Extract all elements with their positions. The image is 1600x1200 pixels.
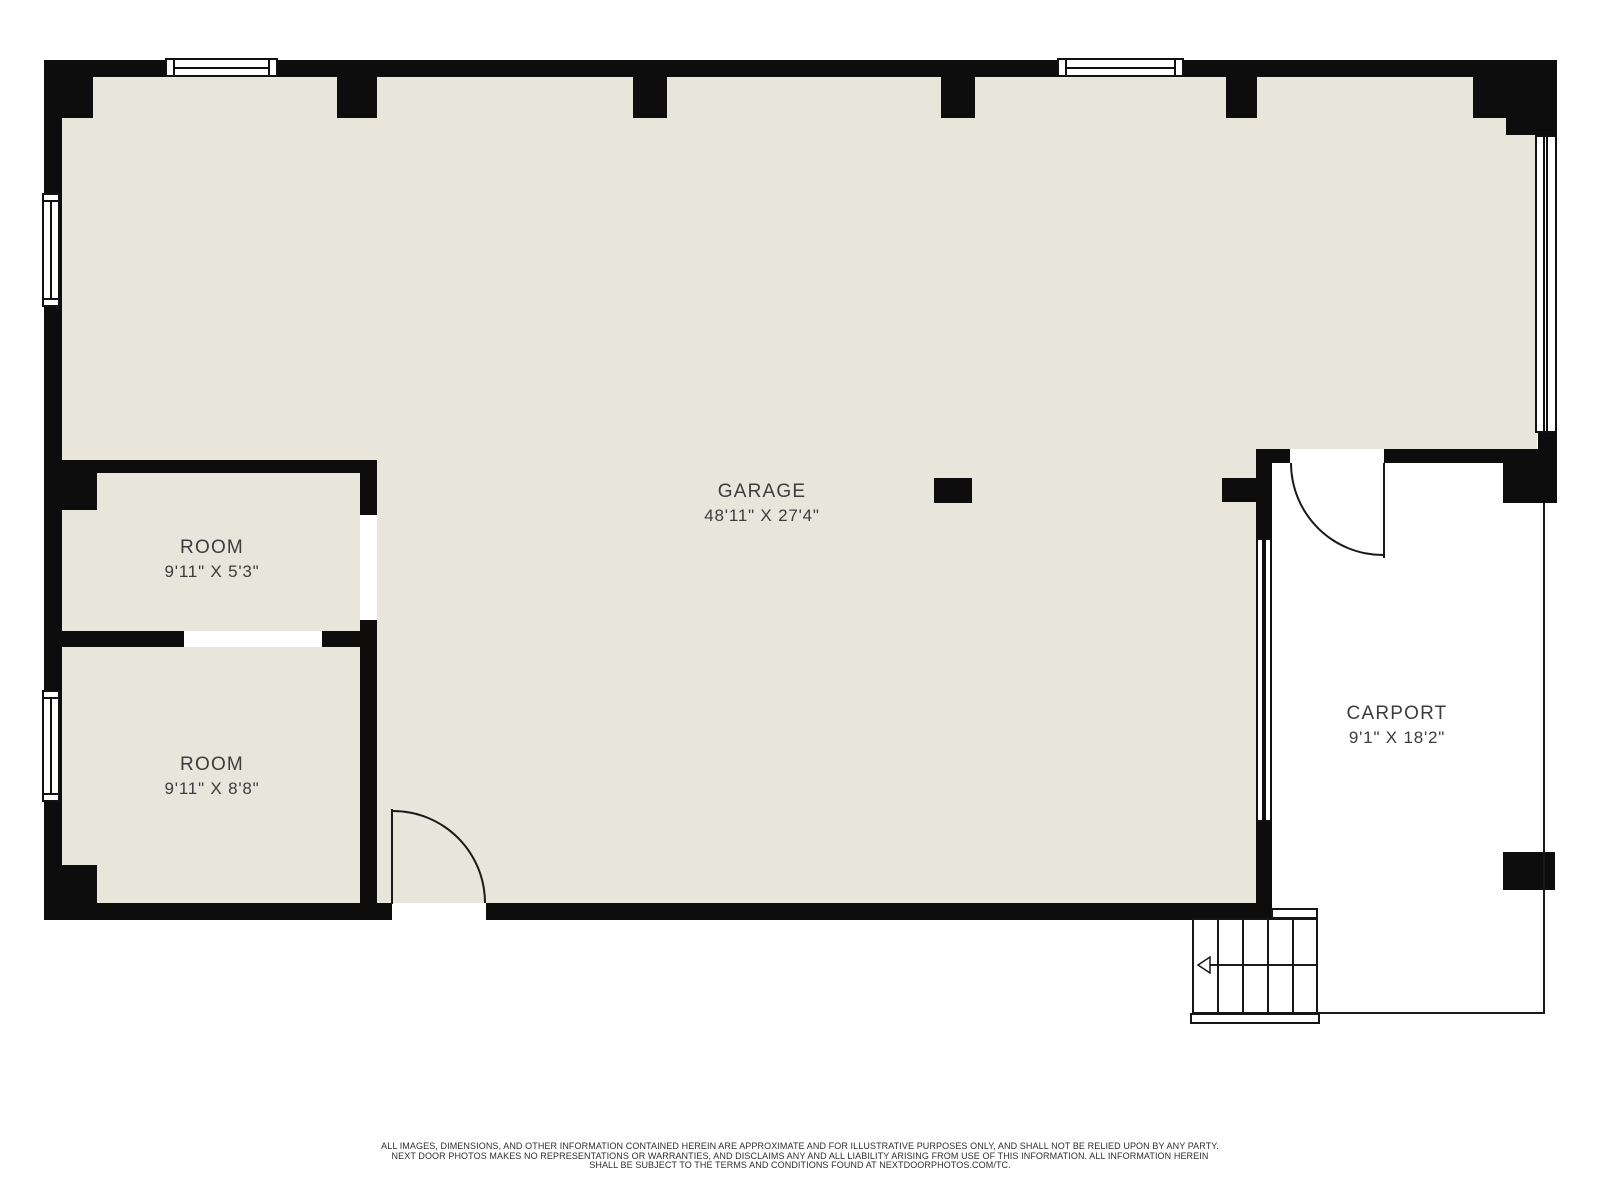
room-dimensions: 9'1" X 18'2" <box>1347 725 1448 751</box>
room-name: ROOM <box>165 536 260 559</box>
window-left-2 <box>42 690 60 802</box>
disclaimer-footer: ALL IMAGES, DIMENSIONS, AND OTHER INFORM… <box>0 1142 1600 1171</box>
garage-label: GARAGE 48'11" X 27'4" <box>704 480 819 529</box>
stair-tread-line <box>1267 920 1269 1012</box>
wall-right-below-window <box>1538 433 1557 463</box>
window-glass-line <box>50 698 52 794</box>
window-glass-line <box>50 201 52 299</box>
pillar-top-right-corner <box>1473 60 1557 118</box>
window-glass-line <box>1543 137 1545 431</box>
disclaimer-line: SHALL BE SUBJECT TO THE TERMS AND CONDIT… <box>0 1161 1600 1171</box>
garage-column <box>934 478 972 503</box>
carport-right-boundary-line <box>1543 503 1545 1014</box>
pillar-top-4 <box>1226 60 1257 118</box>
carport-door-opening <box>1290 449 1384 463</box>
window-glass-line <box>173 67 270 69</box>
window-left-1 <box>42 193 60 307</box>
carport-label: CARPORT 9'1" X 18'2" <box>1347 702 1448 751</box>
garage-entry-door-opening <box>392 903 486 920</box>
pillar-top-1 <box>337 60 377 118</box>
window-glass-line <box>1065 67 1176 69</box>
stairs-direction-arrow-icon <box>1196 956 1212 974</box>
carport-door-leaf <box>1383 463 1385 558</box>
carport-column-left <box>1222 478 1256 502</box>
pillar-top-2 <box>633 60 667 118</box>
rooms-divider-opening <box>184 631 322 647</box>
stair-tread-line <box>1292 920 1294 1012</box>
carport-pillar-bottom-right <box>1503 852 1555 890</box>
room-dimensions: 9'11" X 8'8" <box>165 776 260 802</box>
window-top-1 <box>165 58 278 77</box>
exterior-wall-bottom <box>44 903 1272 920</box>
window-glass-line <box>1264 540 1266 820</box>
garage-floor-right-extension <box>1272 77 1537 449</box>
carport-left-window <box>1256 538 1272 822</box>
carport-pillar-top-right <box>1503 462 1557 503</box>
stair-tread-line <box>1217 920 1219 1012</box>
room-dimensions: 48'11" X 27'4" <box>704 503 819 529</box>
stair-tread-line <box>1242 920 1244 1012</box>
wall-right-step <box>1506 118 1557 135</box>
rooms-top-wall <box>44 460 377 473</box>
pillar-top-3 <box>941 60 975 118</box>
carport-door-swing <box>1290 463 1383 556</box>
room1-label: ROOM 9'11" X 5'3" <box>165 536 260 585</box>
pillar-top-left-corner <box>44 60 93 118</box>
room2-label: ROOM 9'11" X 8'8" <box>165 753 260 802</box>
room-dimensions: 9'11" X 5'3" <box>165 559 260 585</box>
window-right-large <box>1535 135 1557 433</box>
room1-door-opening <box>360 515 377 620</box>
carport-bottom-boundary-line <box>1318 1012 1545 1014</box>
room-name: CARPORT <box>1347 702 1448 725</box>
window-top-2 <box>1057 58 1184 77</box>
stairs-direction-line <box>1210 964 1318 966</box>
floorplan-canvas: GARAGE 48'11" X 27'4" ROOM 9'11" X 5'3" … <box>0 0 1600 1200</box>
room-name: ROOM <box>165 753 260 776</box>
room-name: GARAGE <box>704 480 819 503</box>
pillar-bottom-left-corner <box>44 865 97 920</box>
stairs-bottom-landing <box>1190 1013 1320 1024</box>
window-glass-line <box>1546 137 1548 431</box>
